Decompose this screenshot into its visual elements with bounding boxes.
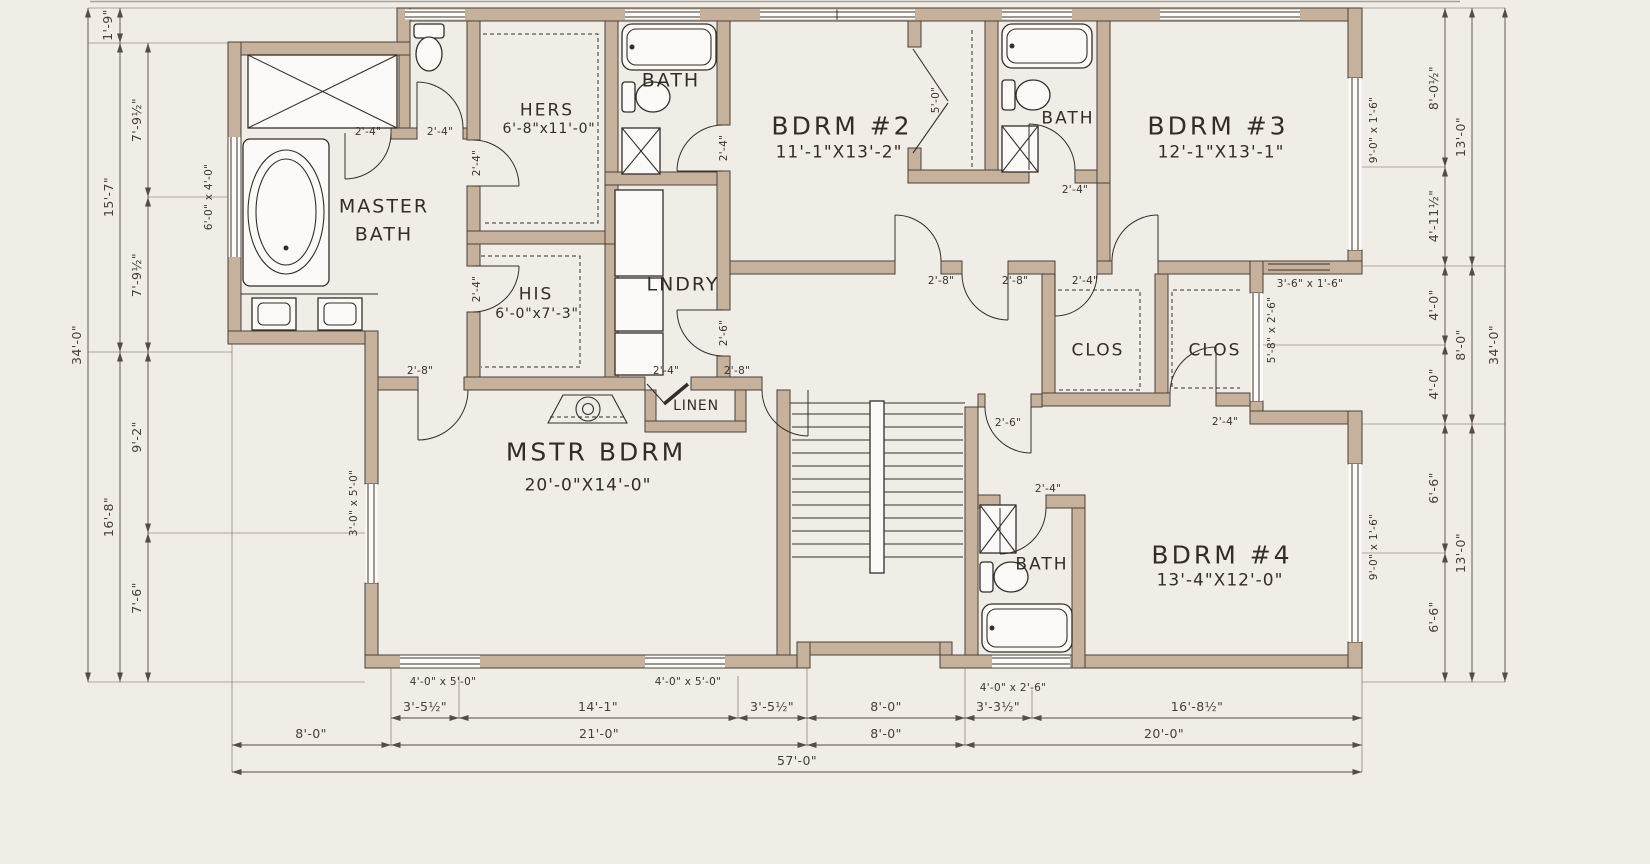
door-label-bath2: 2'-4" xyxy=(1062,185,1088,196)
bifold-doors xyxy=(647,49,948,404)
room-size-bedroom3: 12'-1"X13'-1" xyxy=(1158,145,1285,162)
dim-left-s1: 1'-9" xyxy=(102,9,115,41)
dim-bottom-r2b: 21'-0" xyxy=(579,728,619,741)
room-label-bedroom2: BDRM #2 xyxy=(771,114,912,139)
door-label-linen: 2'-4" xyxy=(653,366,679,377)
dim-right-s4: 4'-0" xyxy=(1428,289,1441,321)
door-label-bedroom3: 2'-4" xyxy=(1072,276,1098,287)
room-label-closet1: CLOS xyxy=(1072,343,1125,360)
door-label-his: 2'-4" xyxy=(472,276,483,302)
dim-left-s4: 7'-9½" xyxy=(131,253,144,297)
window-label-closet: 5'-8" x 2'-6" xyxy=(1267,297,1278,364)
window-label-step: 3'-6" x 1'-6" xyxy=(1277,279,1344,290)
dim-left-s5: 9'-2" xyxy=(131,421,144,453)
room-label-master-bath-2: BATH xyxy=(355,226,413,245)
closet-shelving xyxy=(481,30,1240,390)
door-label-closet-bifold: 5'-0" xyxy=(931,87,942,113)
dim-left-s7: 7'-6" xyxy=(131,582,144,614)
dim-left-s3: 15'-7" xyxy=(103,177,116,217)
dim-bottom-total: 57'-0" xyxy=(777,755,817,768)
room-size-master-bedroom: 20'-0"X14'-0" xyxy=(525,478,652,495)
dim-bottom-s3: 3'-5½" xyxy=(750,701,794,714)
stairs xyxy=(790,401,965,573)
hall-bath-fixtures xyxy=(622,24,716,174)
window-label-bottom1: 4'-0" x 5'-0" xyxy=(410,677,477,688)
room-label-bedroom3: BDRM #3 xyxy=(1147,114,1288,139)
window-label-bedroom4: 9'-0" x 1'-6" xyxy=(1369,514,1380,581)
room-label-linen: LINEN xyxy=(673,399,719,413)
room-size-bedroom2: 11'-1"X13'-2" xyxy=(776,145,903,162)
master-vanity xyxy=(241,294,378,330)
room-label-master-bath-1: MASTER xyxy=(339,198,429,217)
dim-right-s7: 6'-6" xyxy=(1428,472,1441,504)
room-label-laundry: LNDRY xyxy=(646,276,719,295)
dim-bottom-s2: 14'-1" xyxy=(578,701,618,714)
door-label-hers: 2'-4" xyxy=(472,150,483,176)
dim-bottom-r2d: 20'-0" xyxy=(1144,728,1184,741)
door-label-master-e: 2'-8" xyxy=(724,366,750,377)
dim-right-total: 34'-0" xyxy=(1488,325,1501,365)
room-label-bath3: BATH xyxy=(1015,557,1068,574)
dim-right-s3: 4'-11½" xyxy=(1428,190,1441,242)
wc-toilet-icon xyxy=(414,24,444,71)
dim-left-s6: 16'-8" xyxy=(103,497,116,537)
door-label-closet2: 2'-4" xyxy=(1212,417,1238,428)
room-label-bath-hall: BATH xyxy=(642,72,700,91)
bath2-fixtures xyxy=(1002,24,1092,172)
door-label-bedroom2: 2'-8" xyxy=(928,276,954,287)
window-label-master-tub: 6'-0" x 4'-0" xyxy=(204,164,215,231)
door-label-hall-stair: 2'-6" xyxy=(995,418,1021,429)
dim-left-total: 34'-0" xyxy=(71,325,84,365)
master-tub xyxy=(243,139,329,286)
dim-bottom-s4: 8'-0" xyxy=(870,701,902,714)
door-label-laundry: 2'-6" xyxy=(719,320,730,346)
dim-bottom-s5: 3'-3½" xyxy=(976,701,1020,714)
dim-left-s2: 7'-9½" xyxy=(131,98,144,142)
window-label-master-bedroom: 3'-0" x 5'-0" xyxy=(349,470,360,537)
room-size-his: 6'-0"x7'-3" xyxy=(495,307,578,321)
dim-bottom-r2c: 8'-0" xyxy=(870,728,902,741)
door-label-hall: 2'-8" xyxy=(1002,276,1028,287)
dim-right-s9: 6'-6" xyxy=(1428,601,1441,633)
dim-right-s5: 8'-0" xyxy=(1455,329,1468,361)
bath3-fixtures xyxy=(980,505,1072,652)
door-label-bath3: 2'-4" xyxy=(1035,484,1061,495)
room-label-his: HIS xyxy=(519,287,554,304)
floor-plan: MASTER BATH HERS 6'-8"x11'-0" HIS 6'-0"x… xyxy=(0,0,1650,864)
dim-right-s6: 4'-0" xyxy=(1428,368,1441,400)
master-shower xyxy=(248,55,397,128)
room-size-hers: 6'-8"x11'-0" xyxy=(502,122,595,136)
window-label-bottom2: 4'-0" x 5'-0" xyxy=(655,677,722,688)
room-label-bedroom4: BDRM #4 xyxy=(1151,543,1292,568)
dim-right-s1: 8'-0½" xyxy=(1428,66,1441,110)
window-label-bedroom3: 9'-0" x 1'-6" xyxy=(1369,97,1380,164)
dim-right-s2: 13'-0" xyxy=(1455,117,1468,157)
room-label-closet2: CLOS xyxy=(1189,343,1242,360)
room-label-master-bedroom: MSTR BDRM xyxy=(506,440,686,465)
dim-right-s8: 13'-0" xyxy=(1455,533,1468,573)
door-label-bath-hall: 2'-4" xyxy=(719,135,730,161)
window-label-bath-bump: 4'-0" x 2'-6" xyxy=(980,683,1047,694)
dim-bottom-s6: 16'-8½" xyxy=(1171,701,1223,714)
door-label-wc: 2'-4" xyxy=(427,127,453,138)
ceiling-fixture xyxy=(548,395,627,423)
door-label-master-w: 2'-8" xyxy=(407,366,433,377)
room-label-bath2: BATH xyxy=(1041,111,1094,128)
room-size-bedroom4: 13'-4"X12'-0" xyxy=(1157,573,1284,590)
door-label-wc-passage: 2'-4" xyxy=(355,127,381,138)
dim-bottom-r2a: 8'-0" xyxy=(295,728,327,741)
dim-bottom-s1: 3'-5½" xyxy=(403,701,447,714)
room-label-hers: HERS xyxy=(520,103,574,120)
